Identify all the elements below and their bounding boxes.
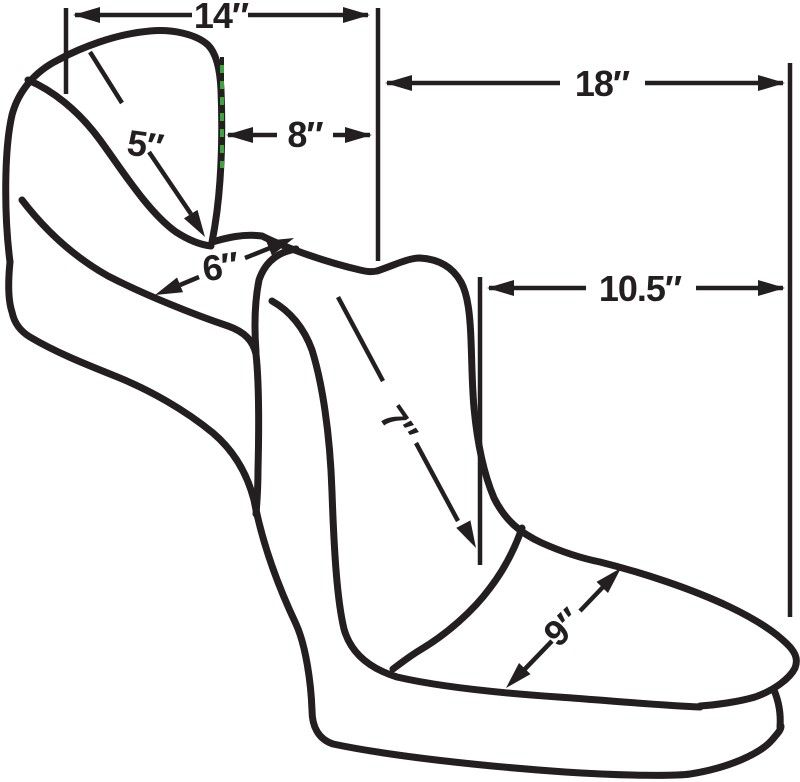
dim-6-line-left xyxy=(180,277,199,285)
dim-14-arrow-left xyxy=(73,7,100,23)
reference-lines-group xyxy=(66,8,790,617)
dim-label-10-5: 10.5″ xyxy=(599,268,682,309)
dim-9-line-upper xyxy=(580,587,603,611)
dim-9-line-lower xyxy=(524,641,552,670)
dim-7-line-lower xyxy=(416,443,458,521)
seat-main-outline xyxy=(6,31,797,706)
dim-18-arrow-left xyxy=(385,75,412,91)
dim-label-8: 8″ xyxy=(287,114,323,155)
seat-welt-line xyxy=(272,301,700,707)
seat-pan-front-scoop xyxy=(393,528,522,669)
dimension-lines-group xyxy=(73,7,785,694)
dim-label-18: 18″ xyxy=(575,63,630,104)
dim-7-line-upper xyxy=(338,297,383,381)
dim-14-arrow-right xyxy=(343,7,370,23)
dim-6-line-right xyxy=(245,248,270,258)
dim-10-5-arrow-right xyxy=(758,280,785,296)
dim-label-14: 14″ xyxy=(194,0,249,36)
seat-rear-crease xyxy=(774,690,780,727)
seat-dimension-diagram: 14″ 18″ 8″ 10.5″ 5″ 6″ 7″ 9″ xyxy=(0,0,800,782)
seat-left-and-skirt-outline xyxy=(9,262,781,775)
dim-label-6: 6″ xyxy=(200,244,241,290)
seat-backrest-dish-line xyxy=(28,80,211,246)
dim-8-arrow-right xyxy=(345,127,372,143)
dim-18-arrow-right xyxy=(758,75,785,91)
diagram-canvas: 14″ 18″ 8″ 10.5″ 5″ 6″ 7″ 9″ xyxy=(0,0,800,782)
dim-label-5: 5″ xyxy=(125,122,166,168)
dim-8-arrow-left xyxy=(226,127,253,143)
dim-10-5-arrow-left xyxy=(487,280,514,296)
dimension-labels-group: 14″ 18″ 8″ 10.5″ 5″ 6″ 7″ 9″ xyxy=(125,0,682,654)
dim-5-line-upper xyxy=(90,52,122,103)
